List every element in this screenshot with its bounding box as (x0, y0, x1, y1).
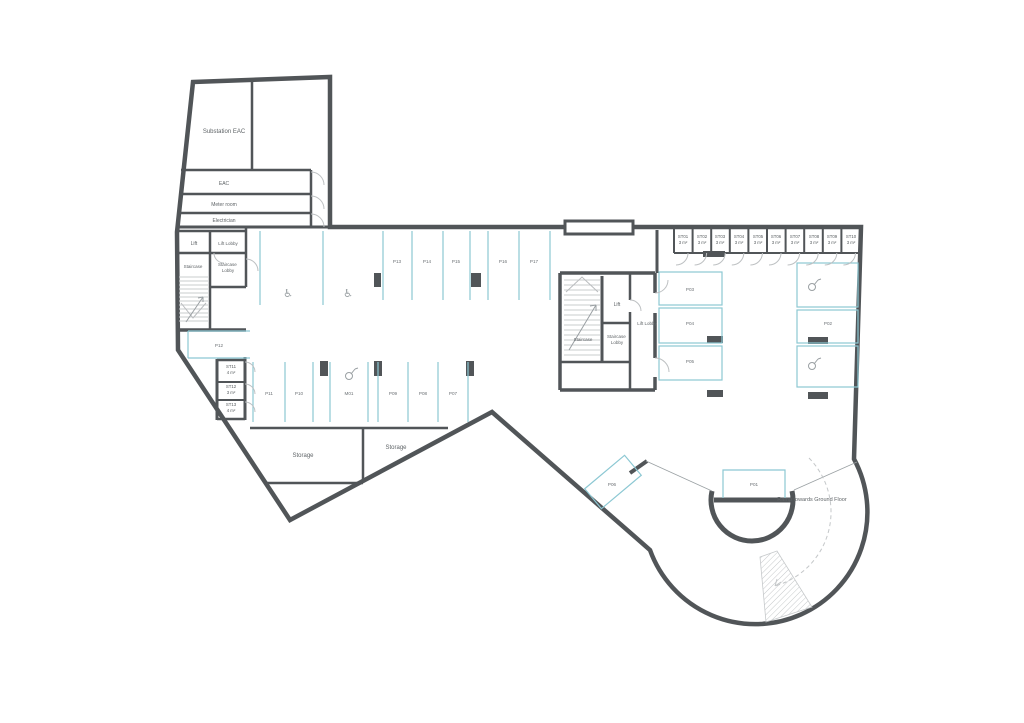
parking-label: P12 (215, 343, 224, 348)
room-label-staircase-west: Staircase (184, 264, 203, 269)
room-label-lift-central: Lift (614, 302, 621, 308)
parking-label: P15 (452, 259, 461, 264)
room-label-storage-2: Storage (385, 445, 407, 451)
parking-label: P08 (419, 391, 428, 396)
floor-plan-page: ♿ ♿ Substation EAC EAC Meter room Electr… (0, 0, 1024, 723)
room-label-substation: Substation EAC (203, 129, 246, 135)
parking-label: P11 (265, 391, 273, 396)
parking-label: P06 (608, 482, 617, 487)
parking-label: P14 (423, 259, 432, 264)
store-label: ST093 m² (827, 234, 838, 245)
parking-label: P03 (686, 287, 695, 292)
room-label-meter: Meter room (211, 202, 237, 208)
parking-label: P10 (295, 391, 304, 396)
store-label: ST043 m² (734, 234, 745, 245)
room-label-eac: EAC (219, 181, 230, 187)
outer-walls (177, 77, 867, 624)
store-label: ST023 m² (697, 234, 708, 245)
room-label-lift-west: Lift (191, 241, 198, 247)
parking-label: P17 (530, 259, 539, 264)
ramp-label: Ramp towards Ground Floor (777, 497, 847, 503)
parking-label: P04 (686, 321, 695, 326)
wheelchair-icon: ♿ (283, 288, 293, 300)
store-label: ST134 m² (226, 402, 237, 413)
parking-label: P13 (393, 259, 402, 264)
parking-label: P07 (449, 391, 458, 396)
store-label: ST103 m² (846, 234, 857, 245)
store-label: ST033 m² (715, 234, 726, 245)
room-label-lift-lobby-central: Lift Lobby (637, 321, 657, 326)
store-label: ST114 m² (226, 364, 237, 375)
room-label-storage-1: Storage (292, 453, 314, 459)
parking-label: M01 (345, 391, 354, 396)
parking-label: P16 (499, 259, 508, 264)
store-label: ST053 m² (753, 234, 764, 245)
store-label: ST083 m² (809, 234, 820, 245)
floor-plan-svg: ♿ ♿ Substation EAC EAC Meter room Electr… (0, 0, 1024, 723)
room-label-lift-lobby-west: Lift Lobby (218, 241, 238, 246)
vent-opening (565, 221, 633, 234)
wheelchair-icon: ♿ (343, 288, 353, 300)
store-label: ST073 m² (790, 234, 801, 245)
parking-label: P02 (824, 321, 833, 326)
store-label: ST123 m² (226, 384, 237, 395)
room-label-staircase-central: Staircase (574, 337, 593, 342)
room-label-electrician: Electrician (212, 218, 235, 224)
parking-label: P09 (389, 391, 398, 396)
parking-label: P05 (686, 359, 695, 364)
store-label: ST013 m² (678, 234, 689, 245)
parking-label: P01 (750, 482, 759, 487)
store-label: ST063 m² (771, 234, 782, 245)
